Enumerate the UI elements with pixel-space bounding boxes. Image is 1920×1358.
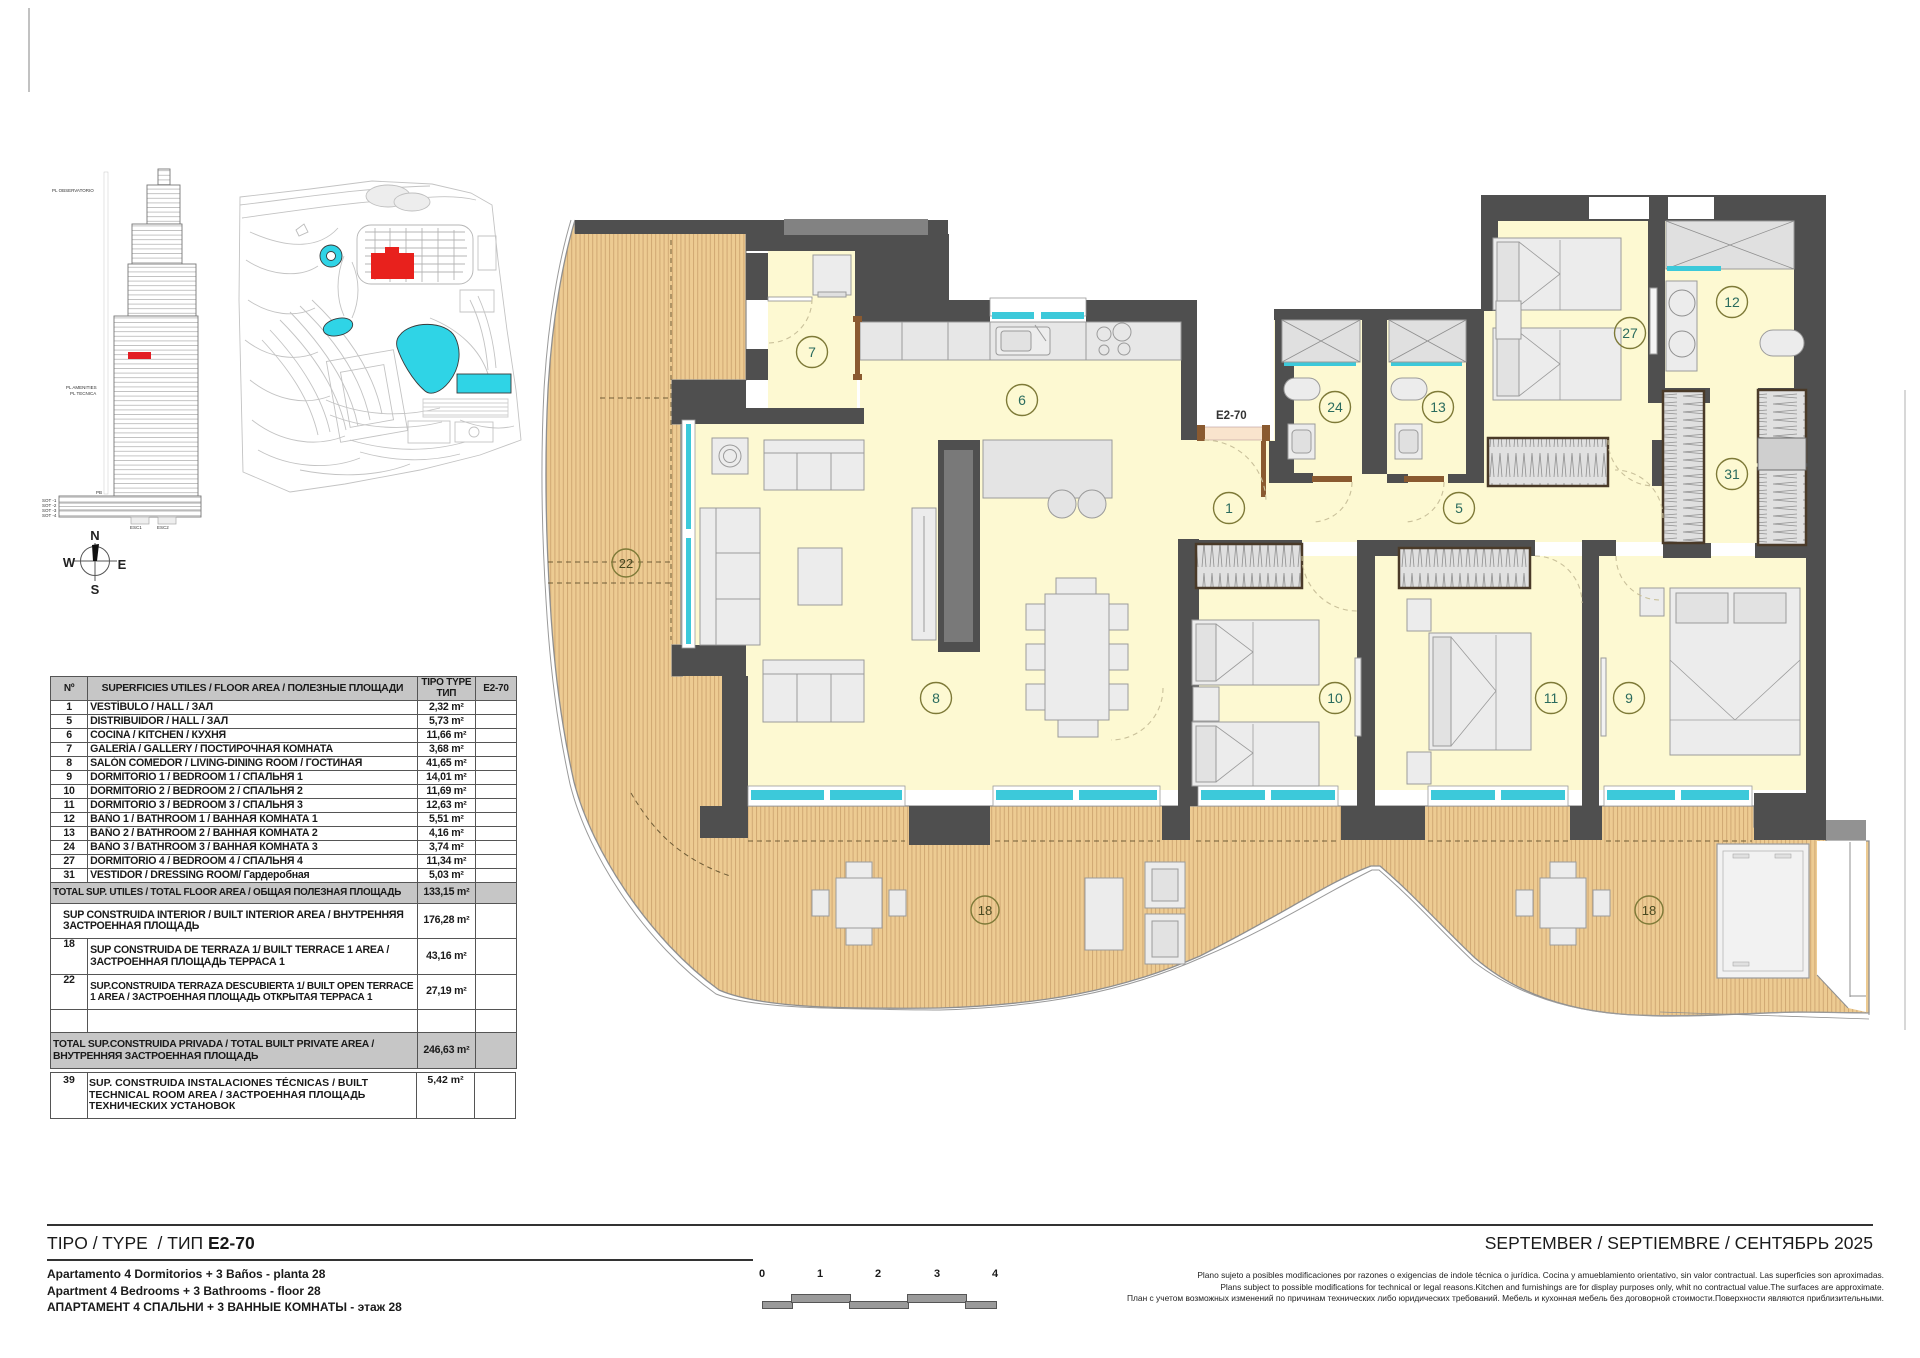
svg-text:E: E	[118, 557, 127, 572]
svg-text:9: 9	[1625, 690, 1633, 706]
svg-text:PB: PB	[96, 490, 102, 495]
svg-text:PL AMENITIES: PL AMENITIES	[66, 385, 97, 390]
svg-text:1: 1	[1225, 500, 1233, 516]
svg-text:SOT -4: SOT -4	[42, 513, 57, 518]
svg-text:7: 7	[808, 344, 816, 360]
svg-text:24: 24	[1327, 399, 1343, 415]
svg-text:12: 12	[1724, 294, 1740, 310]
svg-text:PL OBSERVATORIO: PL OBSERVATORIO	[52, 188, 94, 193]
svg-text:5: 5	[1455, 500, 1463, 516]
svg-text:10: 10	[1327, 690, 1343, 706]
svg-text:W: W	[63, 555, 76, 570]
svg-text:13: 13	[1430, 399, 1446, 415]
svg-text:S: S	[91, 582, 100, 597]
svg-text:22: 22	[619, 556, 633, 571]
svg-text:8: 8	[932, 690, 940, 706]
svg-text:ESC2: ESC2	[157, 525, 169, 530]
svg-text:31: 31	[1724, 466, 1740, 482]
svg-text:E2-70: E2-70	[1216, 410, 1247, 422]
svg-text:PL TECNICA: PL TECNICA	[70, 391, 96, 396]
svg-text:N: N	[90, 528, 99, 543]
svg-text:18: 18	[978, 903, 992, 918]
svg-text:6: 6	[1018, 392, 1026, 408]
svg-text:27: 27	[1622, 325, 1638, 341]
svg-text:11: 11	[1544, 690, 1559, 706]
svg-text:ESC1: ESC1	[130, 525, 142, 530]
svg-text:18: 18	[1642, 903, 1656, 918]
